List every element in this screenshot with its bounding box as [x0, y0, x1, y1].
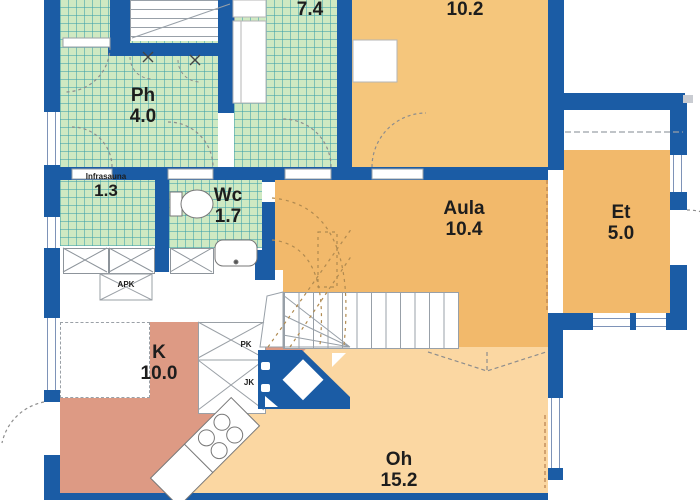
- label-room-wc: Wc 1.7: [192, 186, 264, 227]
- label-room-livingroom: Oh 15.2: [356, 450, 442, 491]
- shower-icon-1: [143, 52, 153, 62]
- winder-treads: [272, 295, 350, 347]
- shower-icon-2: [190, 55, 200, 65]
- door-arc-kitchen-exterior: [2, 402, 44, 443]
- room-area: 5.0: [588, 224, 654, 245]
- door-arc-ph-hall: [168, 122, 213, 167]
- stove: [151, 398, 260, 500]
- room-area: 1.3: [56, 182, 156, 200]
- bedroom-furniture: [353, 40, 397, 82]
- label-room-et: Et 5.0: [588, 203, 654, 244]
- fireplace: [258, 350, 350, 409]
- sauna-bench: [233, 21, 266, 103]
- room-name: Et: [588, 203, 654, 224]
- upper-stairs-diagonal: [132, 4, 230, 38]
- room-area: 1.7: [192, 207, 264, 228]
- label-room-ph: Ph 4.0: [105, 86, 181, 127]
- room-area: 10.4: [420, 220, 508, 241]
- threshold-ph-hall: [168, 169, 213, 179]
- stair-winders: [260, 292, 283, 347]
- door-leaf-ph-top: [63, 38, 110, 47]
- door-arc-sauna: [283, 119, 331, 167]
- closet-x-2: [109, 248, 153, 272]
- fireplace-notch-1: [332, 353, 346, 367]
- stove-body: [151, 398, 260, 500]
- room-name: Oh: [356, 450, 442, 471]
- room-name: Aula: [420, 199, 508, 220]
- closet-x-1: [63, 248, 107, 272]
- shower-arc-2: [178, 60, 200, 82]
- label-dishwasher: APK: [100, 280, 152, 289]
- closet-x-3: [170, 248, 212, 272]
- door-arc-entrance: [687, 210, 700, 226]
- floor-plan: Ph 4.0 7.4 10.2 Infrasauna 1.3 Wc 1.7 Au…: [0, 0, 700, 500]
- door-arc-ph-top: [65, 47, 110, 92]
- label-fridge: JK: [231, 378, 267, 387]
- label-freezer: PK: [228, 340, 264, 349]
- cabinet-swing-lines: [198, 322, 264, 410]
- label-room-kitchen: K 10.0: [122, 343, 196, 384]
- fireplace-vent-1: [261, 362, 270, 370]
- sauna-bench-top: [233, 0, 266, 17]
- stair-guide-1: [268, 228, 352, 347]
- toilet-tank: [170, 192, 182, 216]
- shower-arc-1: [130, 57, 152, 79]
- symbols-overlay: [0, 0, 700, 500]
- label-room-aula: Aula 10.4: [420, 199, 508, 240]
- door-arc-bedroom: [372, 113, 426, 167]
- door-arc-infrasauna: [72, 127, 112, 167]
- room-area: 10.0: [122, 364, 196, 385]
- room-area: 4.0: [105, 107, 181, 128]
- room-area: 15.2: [356, 471, 442, 492]
- washbasin-drain: [234, 260, 238, 264]
- room-name: Wc: [192, 186, 264, 207]
- threshold-sauna-aula: [285, 169, 331, 179]
- label-room-sauna: 7.4: [282, 0, 338, 21]
- room-area: 10.2: [432, 0, 498, 21]
- threshold-bedroom-aula: [372, 169, 423, 179]
- room-area: 7.4: [282, 0, 338, 21]
- room-name: K: [122, 343, 196, 364]
- label-room-bedroom: 10.2: [432, 0, 498, 21]
- label-room-infrasauna: Infrasauna 1.3: [56, 173, 156, 200]
- room-name: Ph: [105, 86, 181, 107]
